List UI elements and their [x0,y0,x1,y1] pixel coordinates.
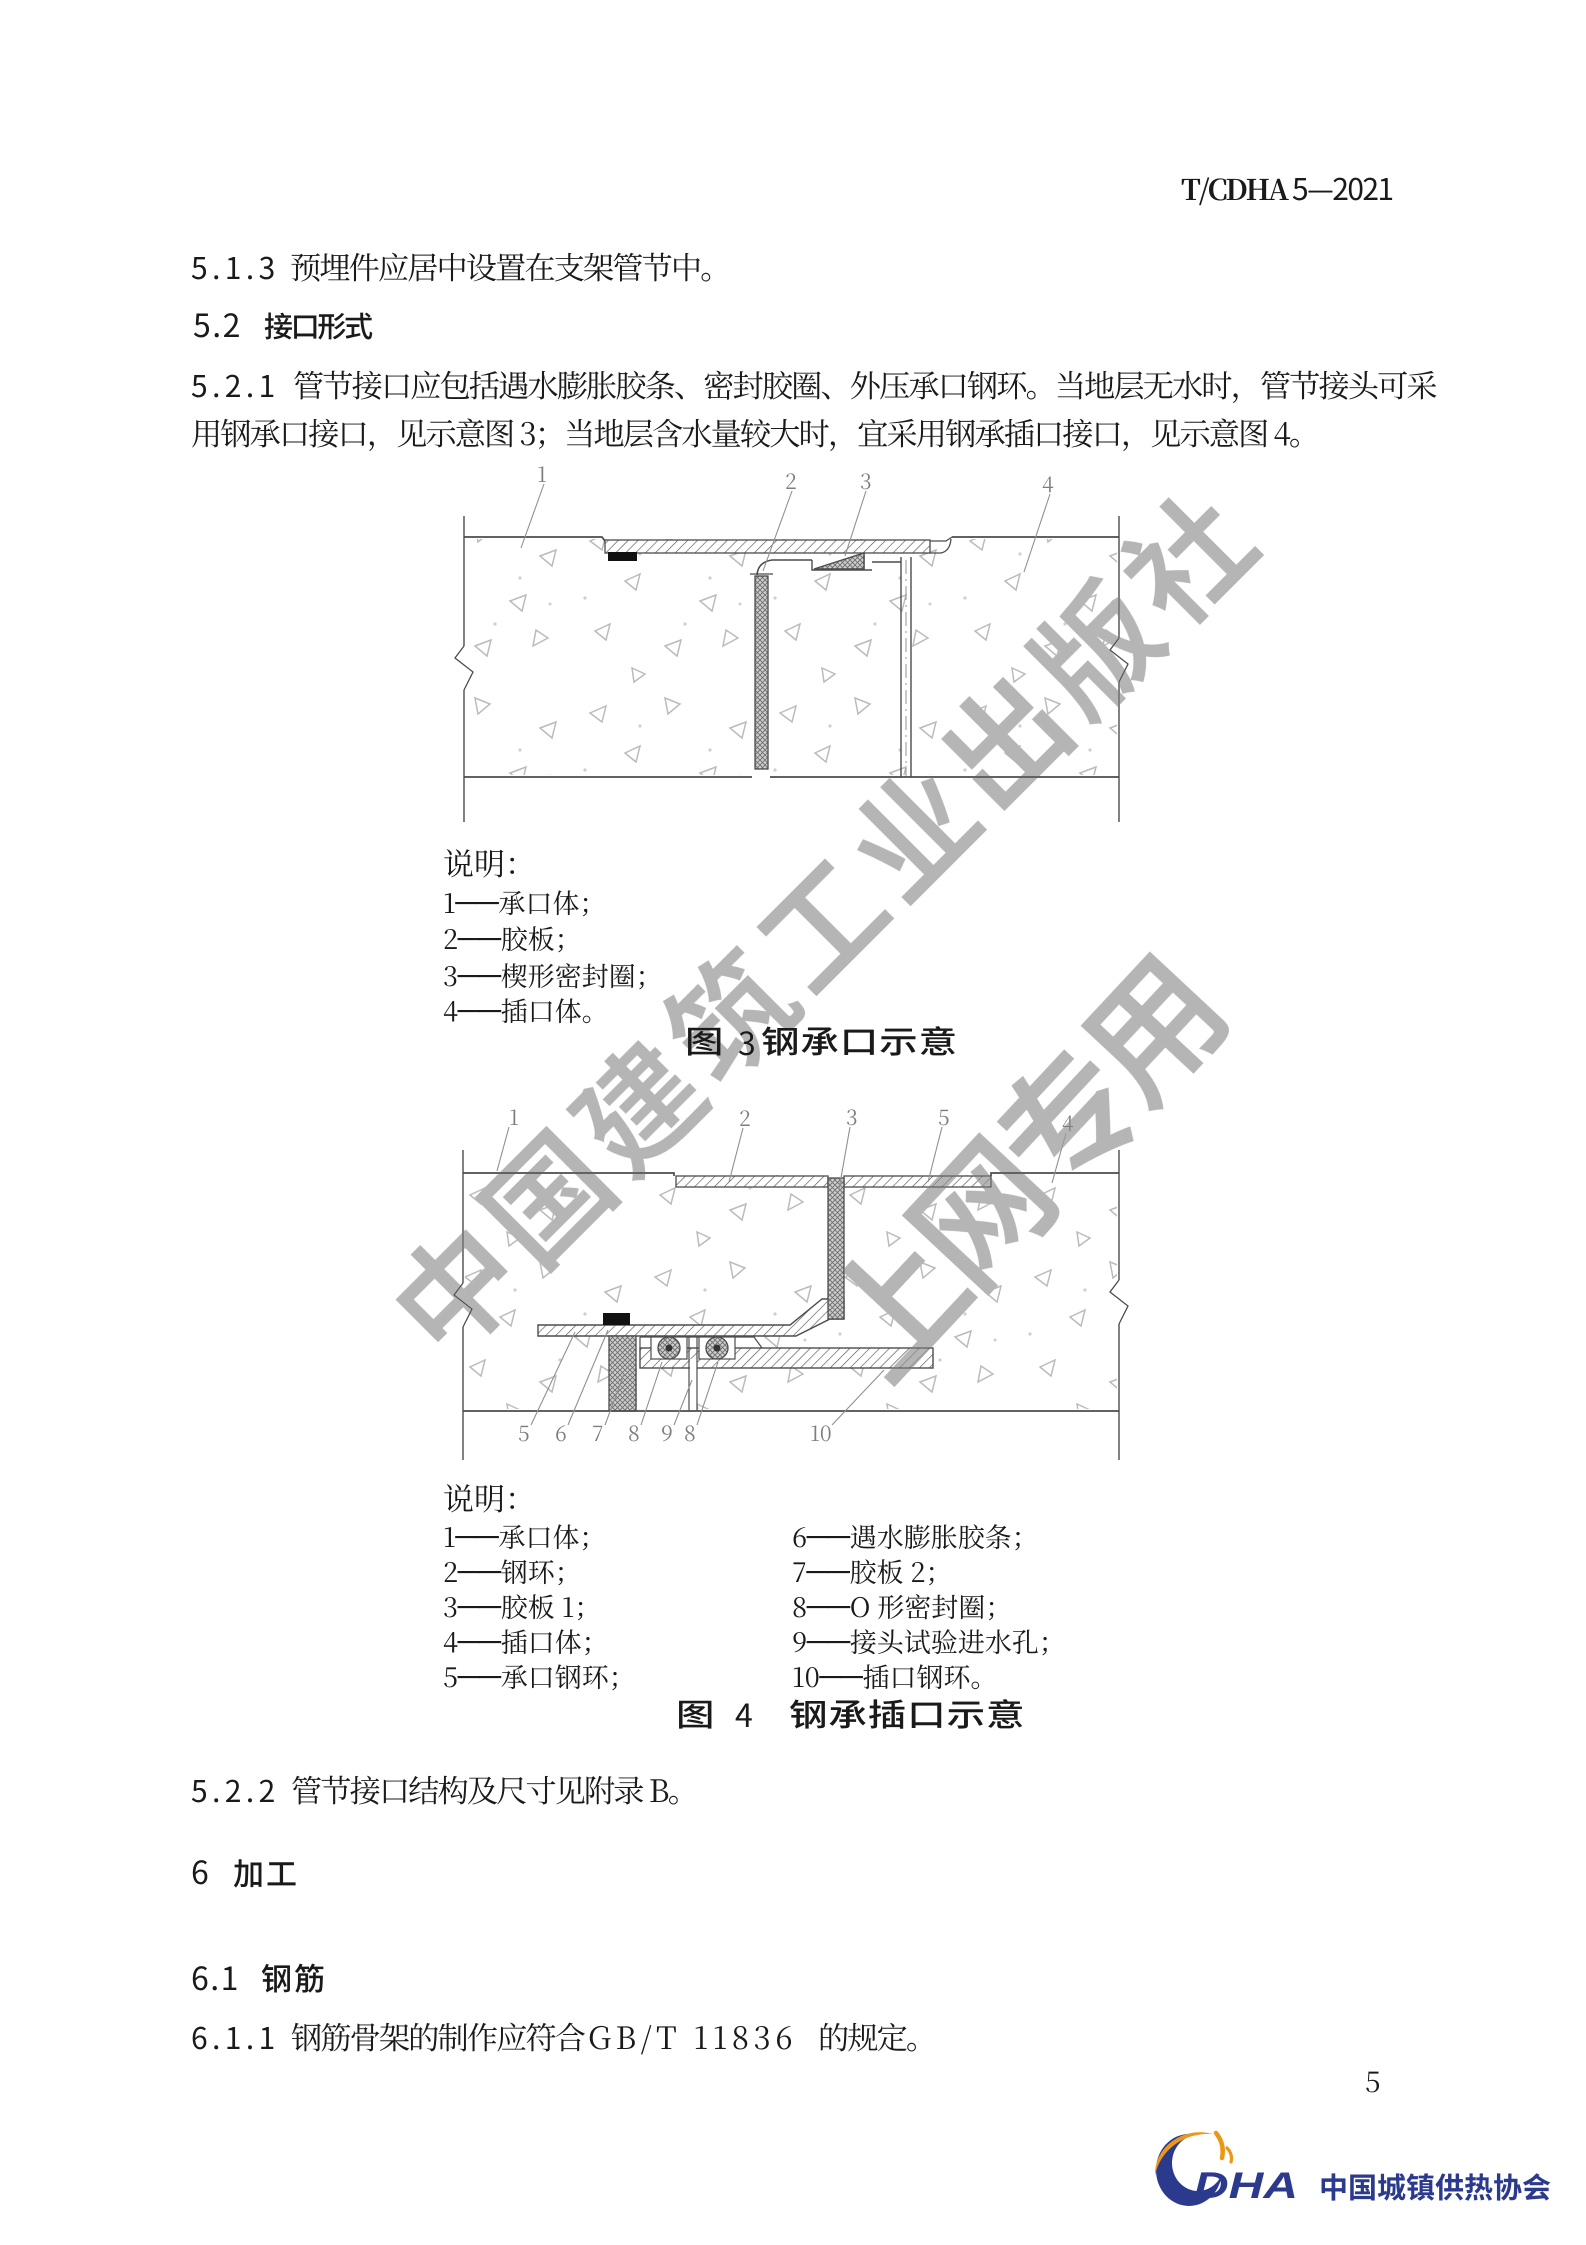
svg-text:DHA: DHA [1194,2165,1298,2206]
